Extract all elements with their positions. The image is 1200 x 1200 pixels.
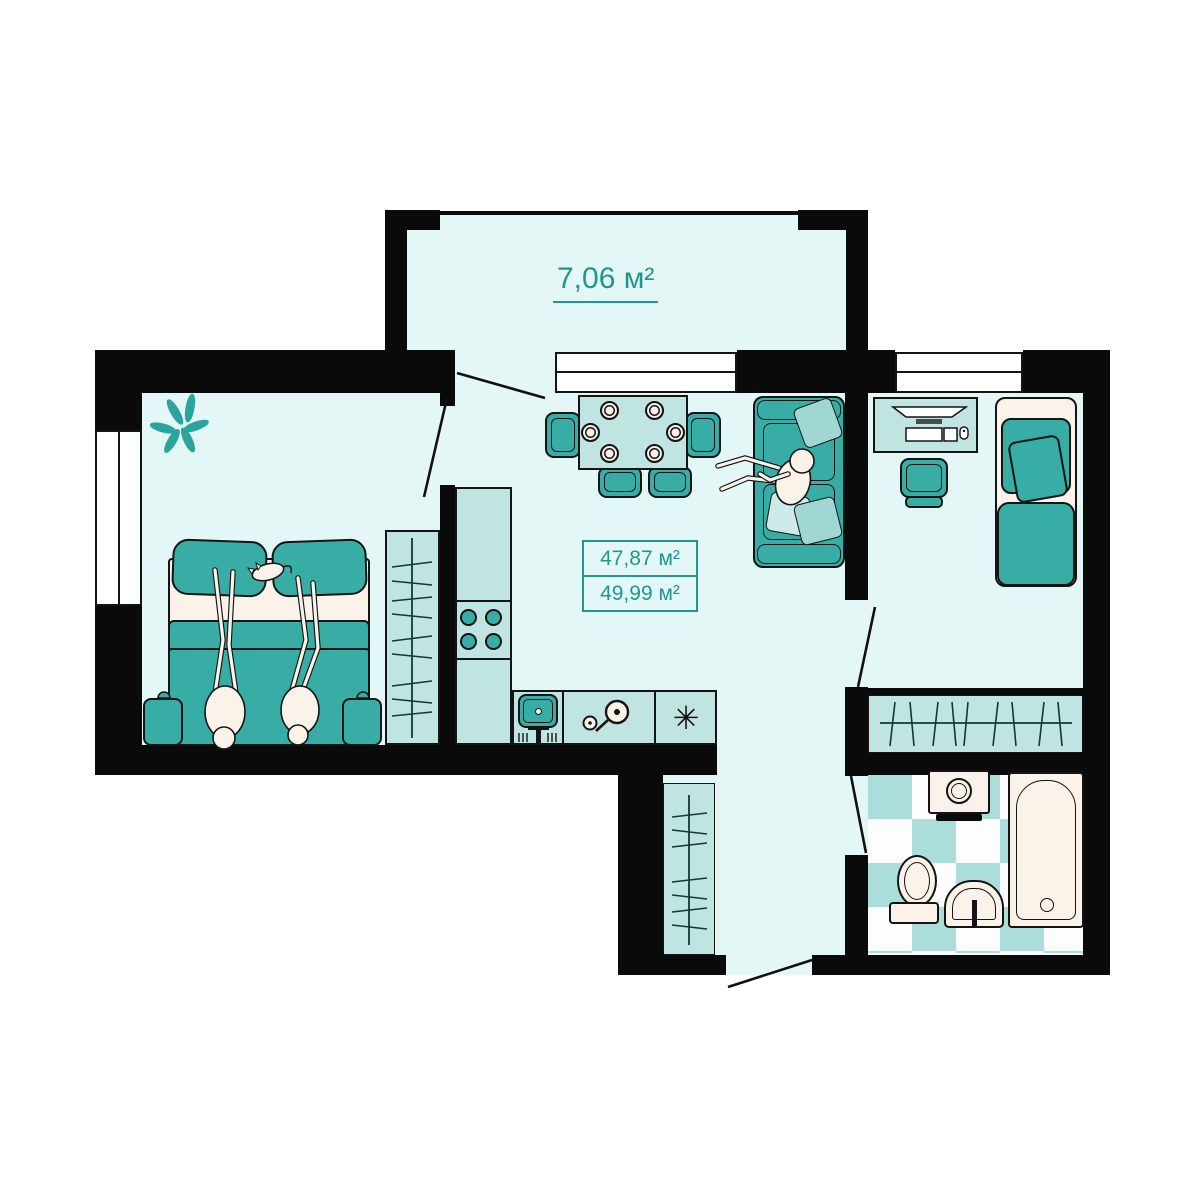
balcony-area-label: 7,06 м² [553, 262, 658, 303]
toilet-base [889, 902, 939, 924]
fridge-asterisk-icon: ✳ [664, 698, 708, 738]
bed-blanket [168, 648, 370, 746]
entrance-door-gap [726, 955, 812, 975]
living-area-label: 47,87 м² [584, 542, 696, 577]
wall [385, 211, 868, 215]
balcony-window [555, 352, 737, 393]
total-area-label: 49,99 м² [584, 577, 696, 610]
plate [581, 423, 600, 442]
plate [600, 401, 619, 420]
plate [666, 423, 685, 442]
wall [95, 393, 142, 430]
bedroom-right-window [895, 352, 1023, 393]
bedroom-left-window [95, 430, 142, 606]
plate [645, 444, 664, 463]
bed-pillow-left [171, 538, 268, 597]
sofa-armrest-bottom [757, 544, 841, 564]
washer-base [936, 814, 982, 821]
wall [845, 392, 868, 600]
bathtub-drain [1040, 898, 1054, 912]
dining-chair-right [685, 412, 721, 458]
nightstand-right [342, 698, 382, 746]
kitchen-counter-bottom [562, 690, 656, 745]
kitchen-sink [518, 694, 558, 728]
plate [600, 444, 619, 463]
closet-right [868, 695, 1083, 753]
plate [645, 401, 664, 420]
wall [95, 605, 142, 750]
wall [440, 485, 455, 745]
wall [385, 210, 407, 352]
desk-chair-base [905, 496, 943, 508]
bathtub [1008, 772, 1084, 928]
wall [737, 350, 895, 393]
desk [873, 397, 978, 453]
dining-chair-bottom-2 [648, 466, 692, 498]
stove-burner [460, 633, 477, 650]
wardrobe-hallway [663, 783, 715, 955]
nightstand-left [143, 698, 183, 746]
wall [440, 390, 455, 406]
sink-drain [535, 708, 542, 715]
toilet-inner [904, 862, 930, 900]
wall [868, 688, 1083, 695]
wall [618, 955, 726, 975]
washer-drum [946, 778, 972, 804]
single-bed-pillow-top [1007, 434, 1069, 504]
dining-chair-bottom-1 [598, 466, 642, 498]
apartment-area-box: 47,87 м² 49,99 м² [582, 540, 698, 612]
stove-burner [485, 609, 502, 626]
window-mullion [557, 371, 735, 373]
single-bed-blanket [997, 502, 1075, 586]
wall [846, 210, 868, 352]
window-mullion [897, 371, 1021, 373]
wall [618, 760, 663, 975]
stove-burner [485, 633, 502, 650]
door-gap-bathroom [845, 776, 868, 855]
dining-chair-left [545, 412, 581, 458]
wall [95, 350, 455, 393]
stove-burner [460, 609, 477, 626]
sink-faucet [972, 900, 977, 928]
toilet-bowl [897, 855, 937, 907]
bed-pillow-right [271, 538, 368, 597]
desk-chair [900, 458, 948, 498]
balcony-door-gap [455, 352, 555, 393]
wall [1083, 350, 1110, 975]
wardrobe-bedroom-left [385, 530, 440, 745]
floorplan-canvas: 7,06 м² 47,87 м² 49,99 м² ✳ [0, 0, 1200, 1200]
window-mullion [118, 432, 120, 604]
door-gap-bedroom-right [845, 600, 868, 688]
wall [845, 855, 868, 975]
bathroom-sink [944, 880, 1004, 928]
